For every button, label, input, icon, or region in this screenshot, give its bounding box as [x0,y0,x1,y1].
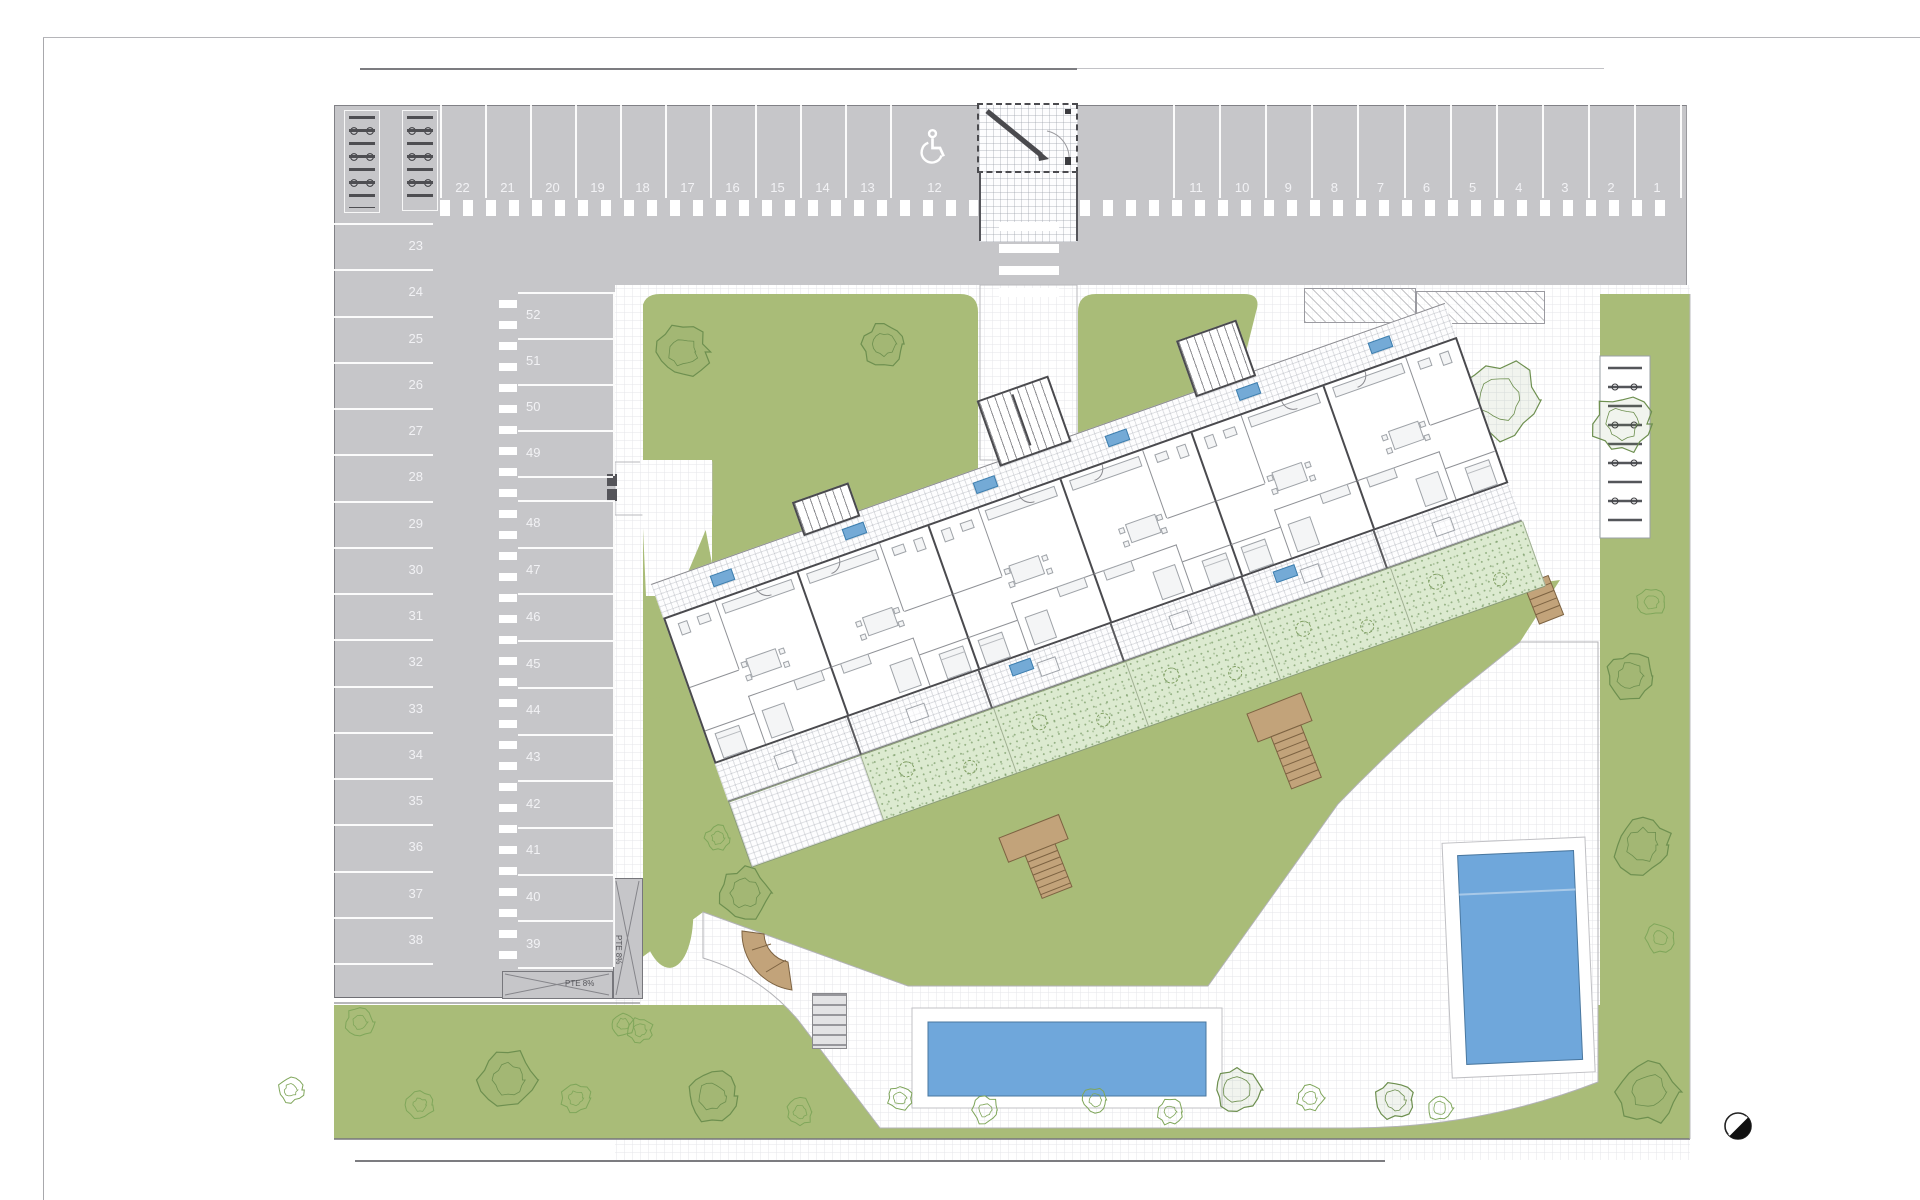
wall-line [953,576,1002,594]
furniture [783,661,791,669]
plant-icon [1426,572,1446,592]
furniture [678,620,692,636]
ramp-label: PTE 8% [565,979,594,988]
furniture [1154,450,1169,463]
sheet-partline-top-light [1077,68,1604,69]
furniture [1009,555,1046,585]
terrace-divider [846,717,861,755]
furniture [1160,527,1168,535]
bush-icon [279,1077,305,1103]
north-arrow-icon [1725,1113,1756,1144]
plant-icon [1029,712,1049,732]
lawn-steps [812,993,847,1049]
plant-icon [1293,618,1313,638]
furniture [892,607,900,615]
side-gate [607,474,617,486]
plant-icon [1094,711,1112,729]
furniture [1386,447,1394,455]
plant-icon [1491,570,1509,588]
furniture [1272,462,1309,492]
terrace-divider [1110,624,1125,662]
furniture [1320,484,1352,504]
furniture [941,527,955,543]
furniture [697,612,712,625]
sheet-border-top [43,37,1920,38]
furniture [762,702,795,738]
pedestrian-ramp-horizontal: PTE 8% [502,971,613,999]
sheet-border-left [43,37,44,1200]
bicycle-icon [351,180,374,187]
bicycle-icon [409,128,432,135]
furniture [1223,426,1238,439]
furniture [897,620,905,628]
wall-line [748,696,766,744]
furniture [1417,357,1432,370]
side-gate [607,489,617,501]
furniture [793,670,825,690]
furniture [1439,350,1453,366]
site-plan-sheet: PTE 8% PTE 8% 2221201918171615141312 111… [0,0,1920,1200]
furniture [1176,444,1190,460]
pool-secondary [1442,837,1595,1078]
furniture [1381,434,1389,442]
plant-icon [1359,617,1377,635]
furniture [1152,564,1185,600]
wall-line [1167,501,1216,519]
plant-icon [1161,665,1181,685]
entrance-side-walls [979,171,1078,241]
furniture [1288,516,1321,552]
furniture [1309,474,1317,482]
sheet-partline-bottom [355,1160,1385,1162]
furniture [1419,420,1427,428]
terrace-table [773,749,797,770]
furniture [1025,609,1058,645]
ramp-slope-lines [503,972,612,998]
terrace-table [1037,656,1061,677]
pedestrian-entrance [979,105,1078,242]
furniture [1041,554,1049,562]
entrance-canopy-dashed [977,103,1078,173]
furniture [1415,471,1448,507]
furniture [1204,434,1218,450]
furniture [1103,560,1135,580]
furniture [859,633,867,641]
wall-line [1011,603,1029,651]
furniture [1046,567,1054,575]
furniture [840,654,872,674]
pool-main [912,1008,1222,1108]
bicycle-icon [351,128,374,135]
bicycle-icon [409,154,432,161]
wall-line [1274,509,1292,557]
furniture [1122,540,1130,548]
terrace-divider [978,670,993,708]
ramp-label: PTE 8% [614,935,623,964]
plant-icon [1226,664,1244,682]
terrace-table [1300,563,1324,584]
terrace-divider [1241,577,1256,615]
furniture [913,537,927,553]
terrace-table [1431,516,1455,537]
sheet-partline-top-dark [360,68,1077,70]
furniture [1056,577,1088,597]
wall-line [690,670,739,688]
plant-icon [897,759,917,779]
entrance-gate-icon [979,105,1074,167]
bicycle-icon [351,154,374,161]
furniture [1304,461,1312,469]
wall-line [1216,483,1265,501]
plant-icon [962,758,980,776]
wall-line [1430,407,1479,425]
bicycle-icon [409,180,432,187]
furniture [778,647,786,655]
wall-line [904,594,953,612]
furniture [1118,527,1126,535]
furniture [1156,514,1164,522]
furniture [1366,467,1398,487]
terrace-table [1168,610,1192,631]
furniture [889,657,922,693]
furniture [855,620,863,628]
terrace-divider [1373,530,1388,568]
terrace-table [905,703,929,724]
furniture [960,519,975,532]
furniture [891,544,906,557]
furniture [1423,434,1431,442]
pedestrian-ramp-vertical: PTE 8% [613,878,643,999]
furniture [745,648,782,678]
